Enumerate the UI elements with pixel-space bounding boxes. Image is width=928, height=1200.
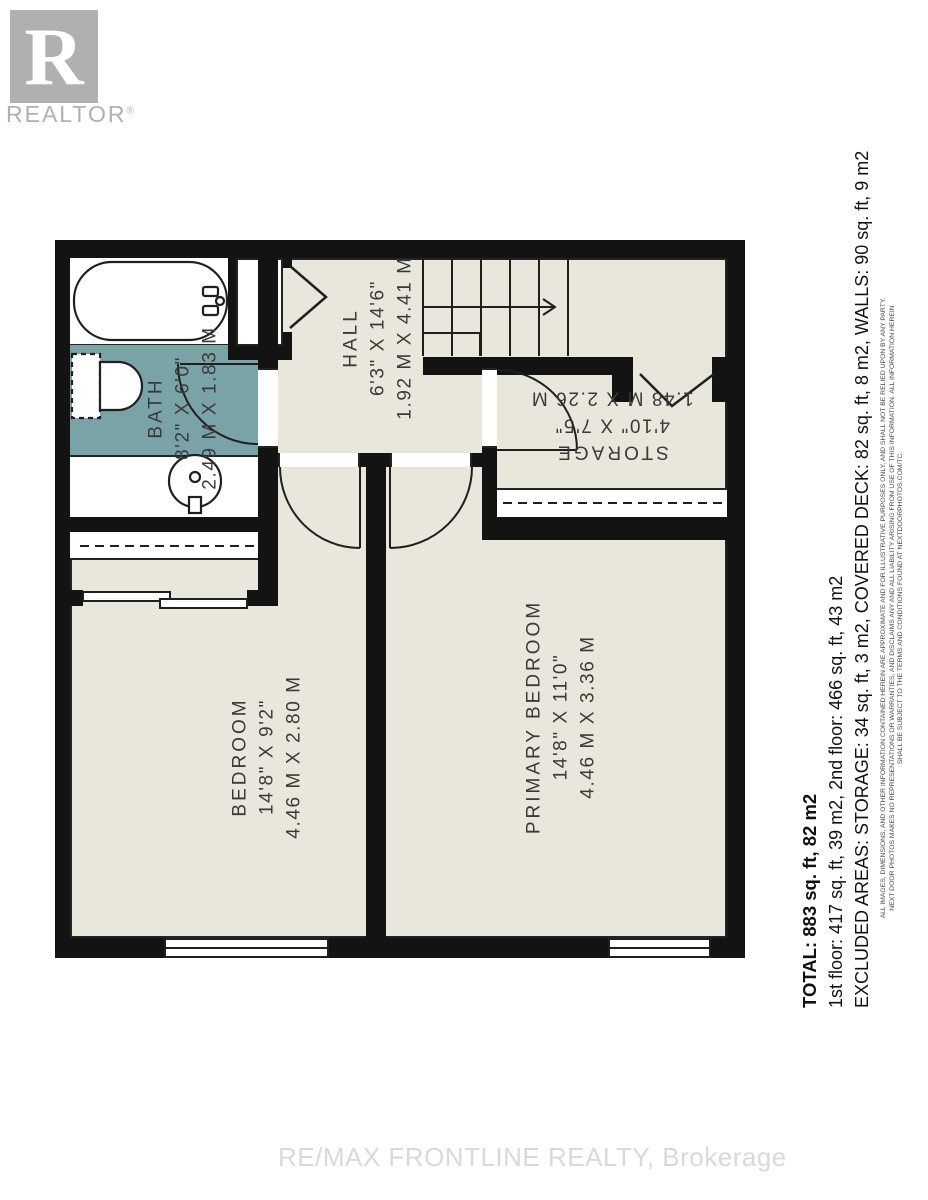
room-label-bedroom: BEDROOM 14'8" X 9'2" 4.46 M X 2.80 M bbox=[227, 675, 308, 838]
disclaimer-line: SHALL BE SUBJECT TO THE TERMS AND CONDIT… bbox=[897, 208, 906, 1008]
room-dim-metric: 1.92 M X 4.41 M bbox=[392, 256, 419, 419]
toilet-icon bbox=[72, 354, 142, 418]
room-label-primary-bedroom: PRIMARY BEDROOM 14'8" X 11'0" 4.46 M X 3… bbox=[521, 600, 602, 834]
room-dim-imperial: 6'3" X 14'6" bbox=[365, 280, 392, 396]
floorplan-page: R REALTOR® bbox=[0, 0, 928, 1200]
room-name: HALL bbox=[338, 308, 365, 368]
room-label-bath: BATH 8'2" X 6'0" 2.49 M X 1.83 M bbox=[143, 326, 224, 489]
total-area-text: TOTAL: 883 sq. ft, 82 m2 bbox=[797, 208, 823, 1008]
disclaimer-line: ALL IMAGES, DIMENSIONS, AND OTHER INFORM… bbox=[880, 208, 889, 1008]
room-dim-imperial: 4'10" X 7'5" bbox=[554, 412, 670, 439]
stairs-up-arrow-icon bbox=[424, 299, 555, 315]
room-dim-metric: 4.46 M X 2.80 M bbox=[281, 675, 308, 838]
room-dim-metric: 2.49 M X 1.83 M bbox=[197, 326, 224, 489]
room-dim-imperial: 8'2" X 6'0" bbox=[170, 356, 197, 460]
room-dim-imperial: 14'8" X 11'0" bbox=[548, 654, 575, 781]
disclaimer-line: NEXT DOOR PHOTOS MAKES NO REPRESENTATION… bbox=[889, 208, 898, 1008]
room-dim-imperial: 14'8" X 9'2" bbox=[254, 699, 281, 815]
realtor-wordmark: REALTOR® bbox=[6, 101, 136, 128]
bedroom-sliding-doors bbox=[83, 592, 247, 608]
registered-mark: ® bbox=[127, 105, 136, 116]
hall-closet-bifold-icon bbox=[290, 266, 326, 328]
floor-areas-text: 1st floor: 417 sq. ft, 39 m2, 2nd floor:… bbox=[823, 208, 849, 1008]
room-name: STORAGE bbox=[555, 439, 669, 466]
room-name: BATH bbox=[143, 377, 170, 438]
brokerage-watermark: RE/MAX FRONTLINE REALTY, Brokerage bbox=[278, 1142, 787, 1173]
room-label-storage: STORAGE 4'10" X 7'5" 1.48 M X 2.26 M bbox=[530, 385, 693, 466]
bedroom-door-swing bbox=[280, 467, 360, 548]
room-name: PRIMARY BEDROOM bbox=[521, 600, 548, 834]
plan-lineart bbox=[0, 0, 928, 1200]
realtor-logo-letter: R bbox=[24, 10, 83, 103]
excluded-areas-text: EXCLUDED AREAS: STORAGE: 34 sq. ft, 3 m2… bbox=[849, 208, 875, 1008]
room-name: BEDROOM bbox=[227, 697, 254, 816]
primary-bedroom-window bbox=[609, 939, 710, 957]
room-dim-metric: 4.46 M X 3.36 M bbox=[575, 635, 602, 798]
realtor-logo-icon: R bbox=[10, 10, 98, 103]
bedroom-window bbox=[165, 939, 328, 957]
room-dim-metric: 1.48 M X 2.26 M bbox=[530, 385, 693, 412]
room-label-hall: HALL 6'3" X 14'6" 1.92 M X 4.41 M bbox=[338, 256, 419, 419]
area-summary: TOTAL: 883 sq. ft, 82 m2 1st floor: 417 … bbox=[797, 208, 906, 1008]
primary-door-swing bbox=[390, 467, 472, 548]
disclaimer: ALL IMAGES, DIMENSIONS, AND OTHER INFORM… bbox=[880, 208, 906, 1008]
